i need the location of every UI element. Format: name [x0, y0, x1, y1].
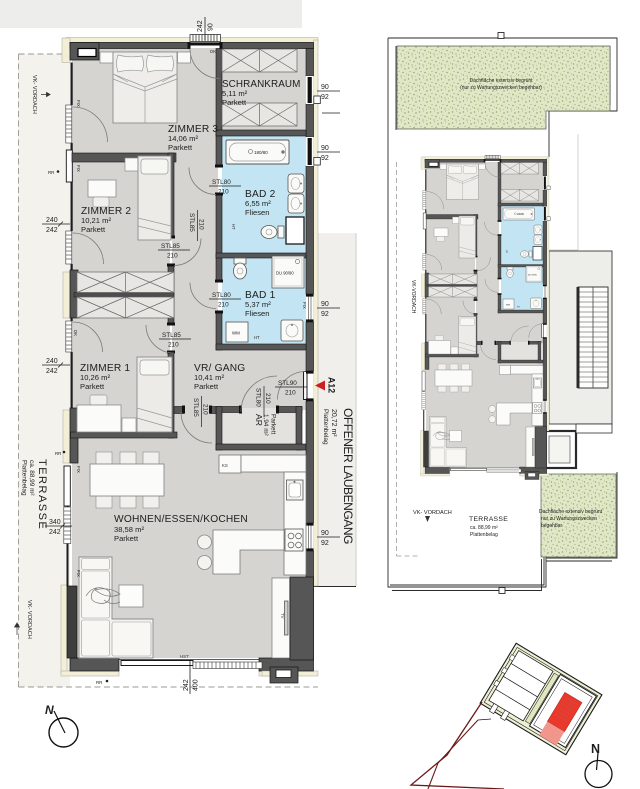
svg-text:240: 240 — [46, 358, 58, 365]
svg-text:N: N — [45, 703, 54, 717]
svg-text:(nur zu Wartungszwecken begehb: (nur zu Wartungszwecken begehbar) — [460, 85, 542, 91]
svg-text:Plattenbelag: Plattenbelag — [470, 532, 498, 538]
svg-text:FIX: FIX — [76, 100, 81, 107]
svg-text:Parkett: Parkett — [270, 414, 277, 434]
svg-text:90: 90 — [321, 530, 329, 537]
svg-text:240: 240 — [46, 217, 58, 224]
svg-text:RR: RR — [96, 680, 102, 685]
svg-text:WOHNEN/ESSEN/KOCHEN: WOHNEN/ESSEN/KOCHEN — [114, 514, 248, 525]
svg-text:Plattenbelag: Plattenbelag — [322, 409, 329, 445]
svg-text:210: 210 — [198, 219, 205, 230]
svg-text:A12: A12 — [327, 377, 337, 393]
svg-text:210: 210 — [168, 342, 179, 349]
svg-text:RR: RR — [55, 451, 61, 456]
svg-text:TV: TV — [280, 613, 285, 619]
svg-text:Parkett: Parkett — [80, 382, 105, 391]
svg-text:STL80: STL80 — [212, 179, 231, 186]
svg-text:STL85: STL85 — [161, 243, 180, 250]
svg-text:TERRASSE: TERRASSE — [36, 459, 48, 530]
svg-text:14,06 m²: 14,06 m² — [168, 134, 198, 143]
svg-text:Parkett: Parkett — [81, 225, 106, 234]
svg-text:210: 210 — [218, 302, 229, 309]
svg-text:STL90: STL90 — [278, 380, 297, 387]
svg-text:FIX: FIX — [76, 570, 81, 577]
svg-text:242: 242 — [46, 368, 58, 375]
svg-text:10,26 m²: 10,26 m² — [80, 373, 110, 382]
svg-text:Plattenbelag: Plattenbelag — [21, 460, 28, 496]
svg-text:210: 210 — [285, 390, 296, 397]
svg-text:242: 242 — [46, 227, 58, 234]
svg-text:TERRASSE: TERRASSE — [469, 516, 508, 523]
svg-text:1,94 m²: 1,94 m² — [262, 414, 269, 436]
svg-text:VK- VORDACH: VK- VORDACH — [26, 600, 32, 639]
svg-text:5,11 m²: 5,11 m² — [222, 89, 248, 98]
svg-text:OFFENER LAUBENGANG: OFFENER LAUBENGANG — [341, 408, 355, 544]
svg-text:FIX: FIX — [302, 302, 307, 309]
svg-text:ca. 88,99 m²: ca. 88,99 m² — [470, 525, 498, 531]
svg-text:STL80: STL80 — [255, 388, 262, 407]
svg-text:242: 242 — [49, 529, 61, 536]
svg-text:Parkett: Parkett — [168, 143, 193, 152]
svg-text:400: 400 — [193, 679, 200, 691]
svg-text:5,37 m²: 5,37 m² — [245, 300, 271, 309]
svg-text:STL85: STL85 — [162, 332, 181, 339]
svg-text:FIX: FIX — [76, 466, 81, 473]
svg-text:Parkett: Parkett — [114, 534, 139, 543]
svg-text:Parkett: Parkett — [222, 98, 247, 107]
svg-text:340: 340 — [49, 519, 61, 526]
svg-text:210: 210 — [218, 189, 229, 196]
svg-text:92: 92 — [321, 155, 329, 162]
svg-text:begehbar: begehbar — [541, 523, 562, 529]
svg-text:90: 90 — [208, 23, 215, 31]
svg-text:90: 90 — [321, 84, 329, 91]
svg-text:nur zu Wartungszwecken: nur zu Wartungszwecken — [541, 516, 597, 522]
svg-text:ca. 88,99 m²: ca. 88,99 m² — [28, 460, 35, 496]
svg-text:92: 92 — [321, 311, 329, 318]
svg-text:210: 210 — [264, 393, 271, 404]
svg-text:STL85: STL85 — [192, 398, 199, 417]
svg-text:90: 90 — [321, 145, 329, 152]
svg-text:HST: HST — [180, 654, 189, 659]
svg-text:DK: DK — [73, 330, 78, 336]
svg-text:VK- VORDACH: VK- VORDACH — [31, 75, 37, 114]
svg-text:10,41 m²: 10,41 m² — [194, 373, 224, 382]
svg-text:210: 210 — [202, 404, 209, 415]
svg-text:90: 90 — [321, 301, 329, 308]
svg-text:210: 210 — [167, 253, 178, 260]
svg-text:FIX: FIX — [76, 165, 81, 172]
svg-text:RR: RR — [48, 170, 54, 175]
svg-text:Fliesen: Fliesen — [245, 309, 269, 318]
svg-text:20,72 m²: 20,72 m² — [330, 409, 337, 437]
svg-text:DK: DK — [210, 49, 216, 54]
svg-text:N: N — [591, 742, 600, 756]
svg-text:92: 92 — [321, 540, 329, 547]
svg-text:Fliesen: Fliesen — [245, 208, 269, 217]
svg-text:STL85: STL85 — [188, 213, 195, 232]
svg-text:VK- VORDACH: VK- VORDACH — [413, 510, 452, 516]
svg-text:KS: KS — [222, 463, 228, 468]
svg-text:VK-VORDACH: VK-VORDACH — [410, 280, 416, 314]
svg-text:Dachfläche extensiv begrünt: Dachfläche extensiv begrünt — [469, 78, 533, 84]
svg-text:92: 92 — [321, 94, 329, 101]
svg-text:242: 242 — [183, 679, 190, 691]
svg-text:STL80: STL80 — [212, 292, 231, 299]
svg-text:10,21 m²: 10,21 m² — [81, 216, 111, 225]
svg-text:38,58 m²: 38,58 m² — [114, 525, 144, 534]
svg-text:Dachfläche extensiv begrünt: Dachfläche extensiv begrünt — [539, 509, 603, 515]
svg-text:Parkett: Parkett — [194, 382, 219, 391]
svg-text:6,55 m²: 6,55 m² — [245, 199, 271, 208]
svg-text:242: 242 — [197, 20, 204, 32]
